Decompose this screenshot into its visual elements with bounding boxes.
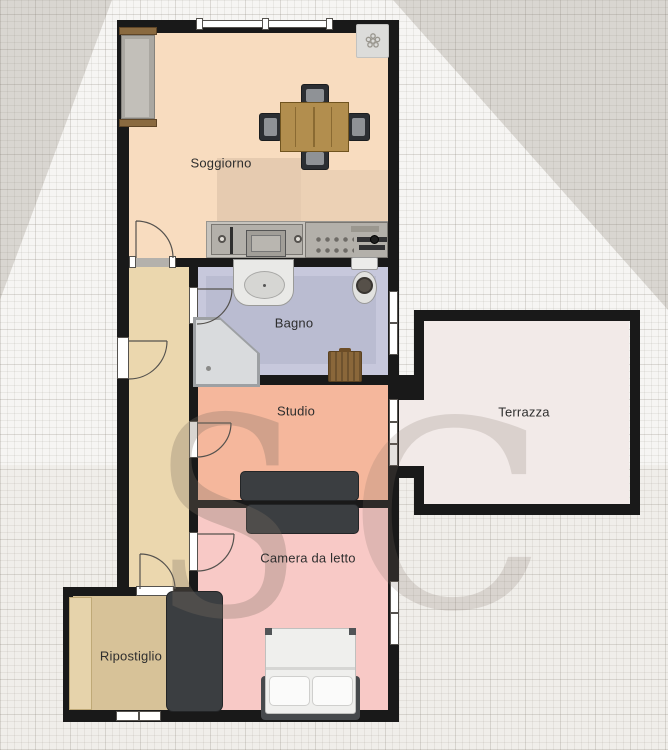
door-camera-swing (197, 534, 234, 571)
room-label-camera: Camera da letto (260, 551, 356, 566)
door-studio-swing (197, 423, 231, 457)
door-ripostiglio-swing (140, 554, 175, 589)
door-entry-swing (129, 341, 167, 379)
door-bagno-swing (197, 289, 232, 324)
floor-plan: S C Soggiorno Bagno Studio Terrazza Came… (0, 0, 668, 750)
room-label-soggiorno: Soggiorno (190, 156, 251, 171)
room-label-ripostiglio: Ripostiglio (100, 649, 162, 664)
room-label-bagno: Bagno (275, 316, 314, 331)
door-swing-arcs (0, 0, 668, 750)
room-label-studio: Studio (277, 404, 315, 419)
door-soggiorno-swing (136, 221, 173, 258)
room-label-terrazza: Terrazza (498, 405, 549, 420)
